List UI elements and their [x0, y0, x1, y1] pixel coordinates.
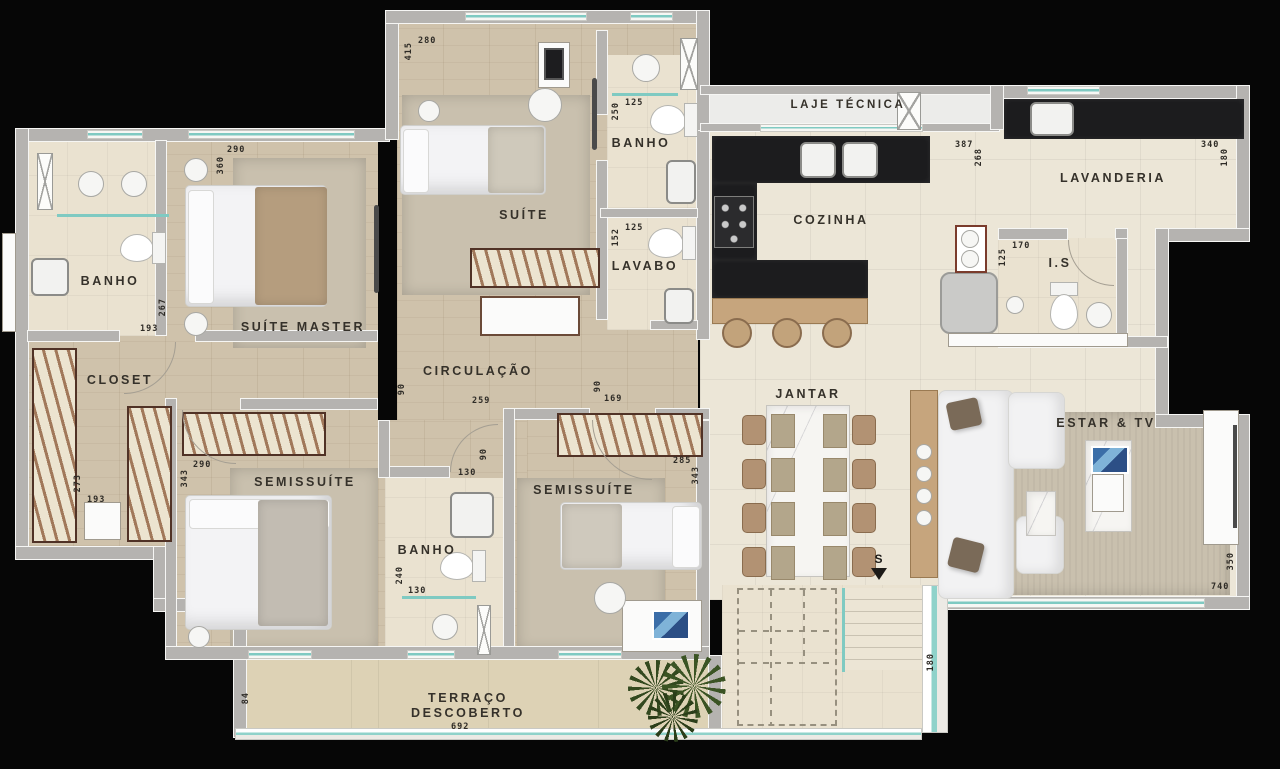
blanket	[488, 127, 544, 193]
wall	[503, 408, 515, 658]
dim-suite-h: 415	[404, 42, 414, 60]
bar-stool	[772, 318, 802, 348]
shower-glass	[57, 214, 169, 217]
dim-closet-w: 193	[87, 495, 105, 505]
stairs-dashed-line	[803, 590, 805, 660]
shaft-box	[37, 153, 53, 210]
sideboard-knob	[916, 510, 932, 526]
room-label-is: I.S	[1048, 256, 1071, 270]
wardrobe	[32, 348, 77, 543]
dim-circulacao-door-left: 90	[397, 383, 407, 395]
dim-estar-w: 740	[1211, 582, 1229, 592]
room-label-terraco-line1: TERRAÇO	[428, 691, 508, 705]
shower-head	[632, 54, 660, 82]
shaft-box	[680, 38, 698, 90]
dim-suite-master-w: 290	[227, 145, 245, 155]
dresser	[480, 296, 580, 336]
laundry-sink	[1030, 102, 1074, 136]
toilet-tank	[682, 226, 696, 260]
palm-plant	[648, 692, 698, 742]
window	[465, 12, 587, 21]
shower-glass	[612, 93, 678, 96]
placemat	[771, 458, 795, 492]
window	[630, 12, 673, 21]
stairs-glass-edge	[842, 588, 845, 672]
placemat	[823, 546, 847, 580]
pedestal-sink	[1086, 302, 1112, 328]
tv-panel	[374, 205, 379, 293]
stairs-void-outline	[737, 588, 837, 726]
wall	[15, 128, 29, 560]
cooktop	[714, 196, 754, 248]
nightstand	[184, 312, 208, 336]
room-label-semissuite-1: SEMISSUÍTE	[254, 475, 356, 489]
wall	[596, 30, 608, 115]
dim-semissuite-2-w: 285	[673, 456, 691, 466]
placemat	[823, 414, 847, 448]
dim-circulacao-w-right: 169	[604, 394, 622, 404]
sideboard-knob	[916, 488, 932, 504]
dining-chair	[742, 547, 766, 577]
blanket	[255, 187, 327, 305]
toilet	[648, 228, 684, 258]
placemat	[823, 502, 847, 536]
dim-banho-top-w: 125	[625, 98, 643, 108]
dim-banho-left-w: 193	[140, 324, 158, 334]
wall	[240, 398, 378, 410]
dining-chair	[852, 459, 876, 489]
stairs-direction-arrow	[871, 568, 887, 580]
tv-panel	[1233, 425, 1237, 528]
placemat	[771, 546, 795, 580]
vanity-sink	[666, 160, 696, 204]
kitchen-sink	[842, 142, 878, 178]
kitchen-island	[712, 260, 868, 298]
room-label-jantar: JANTAR	[775, 387, 840, 401]
dining-chair	[852, 503, 876, 533]
room-label-lavabo: LAVABO	[612, 259, 679, 273]
room-label-suite-master: SUÍTE MASTER	[241, 320, 365, 334]
placemat	[771, 414, 795, 448]
shaft-box	[477, 605, 491, 655]
dim-circulacao-door-right: 90	[593, 380, 603, 392]
dim-stairs-h: 180	[926, 653, 936, 671]
room-label-banho-top: BANHO	[612, 136, 671, 150]
dim-lavabo-w: 125	[625, 223, 643, 233]
wall	[696, 130, 710, 340]
dim-semissuite-1-h: 343	[180, 469, 190, 487]
nightstand	[184, 158, 208, 182]
room-label-circulacao: CIRCULAÇÃO	[423, 364, 533, 378]
wall	[600, 208, 698, 218]
bar-stool	[722, 318, 752, 348]
room-label-lavanderia: LAVANDERIA	[1060, 171, 1166, 185]
closet-stool	[84, 502, 121, 540]
wall	[696, 10, 710, 140]
tv-screen	[652, 610, 690, 640]
tub-basin	[961, 250, 979, 268]
floor-plan: S BANHO SUÍTE MASTER CLOSET SEMISSUÍTE S…	[0, 0, 1280, 769]
pillow	[672, 506, 700, 568]
wall-niche	[2, 233, 16, 332]
dim-banho-bottom-w: 130	[408, 586, 426, 596]
hall-cabinet	[948, 333, 1128, 347]
dim-lavanderia-w: 340	[1201, 140, 1219, 150]
dim-semissuite-2-h: 343	[691, 466, 701, 484]
room-label-terraco-line2: DESCOBERTO	[411, 706, 525, 720]
room-label-cozinha: COZINHA	[793, 213, 868, 227]
room-label-banho-bottom: BANHO	[398, 543, 457, 557]
shaft-box	[897, 92, 921, 130]
bar-stool	[822, 318, 852, 348]
room-label-laje-tecnica: LAJE TÉCNICA	[791, 99, 906, 111]
dim-estar-h: 350	[1226, 552, 1236, 570]
shower-head	[432, 614, 458, 640]
pillow	[188, 190, 214, 304]
dim-is-w: 170	[1012, 241, 1030, 251]
dim-is-h: 125	[998, 248, 1008, 266]
shower-head	[121, 171, 147, 197]
dim-cozinha-w: 387	[955, 140, 973, 150]
dim-suite-w: 280	[418, 36, 436, 46]
tablet	[544, 48, 564, 80]
stairs-label: S	[874, 552, 883, 566]
shaft-void	[1169, 242, 1254, 414]
desk-chair	[594, 582, 626, 614]
stairs-dashed-line	[770, 590, 772, 724]
nightstand	[188, 626, 210, 648]
stairs-dashed-line	[739, 630, 835, 632]
wall	[1155, 228, 1169, 428]
wall	[990, 85, 1004, 130]
wall	[385, 10, 399, 140]
placemat	[823, 458, 847, 492]
window	[87, 130, 143, 139]
room-label-banho-left: BANHO	[81, 274, 140, 288]
dim-banho-left-h: 267	[158, 298, 168, 316]
room-label-suite: SUÍTE	[499, 208, 549, 222]
sideboard-knob	[916, 444, 932, 460]
dim-banho-bottom-h: 240	[395, 566, 405, 584]
dim-suite-master-h: 360	[216, 156, 226, 174]
room-label-closet: CLOSET	[87, 373, 153, 387]
window	[188, 130, 355, 139]
tub-basin	[961, 230, 979, 248]
dim-cozinha-h: 268	[974, 148, 984, 166]
sofa-chaise	[1008, 392, 1065, 469]
window-estar	[945, 598, 1205, 608]
dim-banho-bottom-door: 130	[458, 468, 476, 478]
dim-banho-top-h: 250	[611, 102, 621, 120]
toilet	[650, 105, 686, 135]
wall	[596, 160, 608, 320]
coffee-table-box	[1092, 474, 1124, 512]
dining-chair	[742, 503, 766, 533]
dim-semissuite-1-w: 290	[193, 460, 211, 470]
nightstand	[418, 100, 440, 122]
dim-circulacao-w-left: 259	[472, 396, 490, 406]
toilet	[120, 234, 154, 262]
side-table	[1026, 491, 1056, 536]
placemat	[771, 502, 795, 536]
wardrobe	[470, 248, 600, 288]
window	[407, 650, 455, 659]
dim-lavanderia-h: 180	[1220, 148, 1230, 166]
stairs-dashed-line	[739, 662, 835, 664]
coffee-table-tray	[1091, 446, 1129, 474]
dim-lavabo-h: 152	[611, 228, 621, 246]
vanity-sink	[450, 492, 494, 538]
wall	[998, 228, 1068, 240]
wall	[700, 85, 1000, 95]
blanket	[562, 504, 622, 568]
stairs-treads	[845, 588, 922, 670]
dining-chair	[742, 415, 766, 445]
terrace-railing	[235, 728, 922, 740]
toilet-tank	[684, 103, 698, 137]
toilet-tank	[152, 232, 166, 264]
wall	[1155, 228, 1250, 242]
vanity-sink	[31, 258, 69, 296]
wall	[15, 546, 167, 560]
lavabo-sink	[664, 288, 694, 324]
window	[1027, 86, 1100, 95]
shower-glass	[402, 596, 476, 599]
sideboard	[910, 390, 938, 578]
room-label-estar-tv: ESTAR & TV	[1056, 416, 1155, 430]
dining-chair	[852, 415, 876, 445]
desk-chair	[528, 88, 562, 122]
wall	[1116, 238, 1128, 338]
kitchen-sink	[800, 142, 836, 178]
dining-chair	[742, 459, 766, 489]
sideboard-knob	[916, 466, 932, 482]
tv-panel	[592, 78, 597, 150]
dim-terraco-w: 692	[451, 722, 469, 732]
wall	[27, 330, 120, 342]
wall	[378, 420, 390, 478]
wardrobe	[127, 406, 172, 542]
pillow	[403, 129, 429, 193]
dim-banho-bottom-hall: 90	[479, 448, 489, 460]
room-label-semissuite-2: SEMISSUÍTE	[533, 483, 635, 497]
dim-terraco-h: 84	[241, 692, 251, 704]
blanket	[258, 500, 328, 626]
toilet-tank	[472, 550, 486, 582]
toilet	[1050, 294, 1078, 330]
window	[248, 650, 312, 659]
pedestal-sink	[1006, 296, 1024, 314]
shower-head	[78, 171, 104, 197]
dim-closet-h: 273	[73, 474, 83, 492]
refrigerator	[940, 272, 998, 334]
window	[558, 650, 622, 659]
